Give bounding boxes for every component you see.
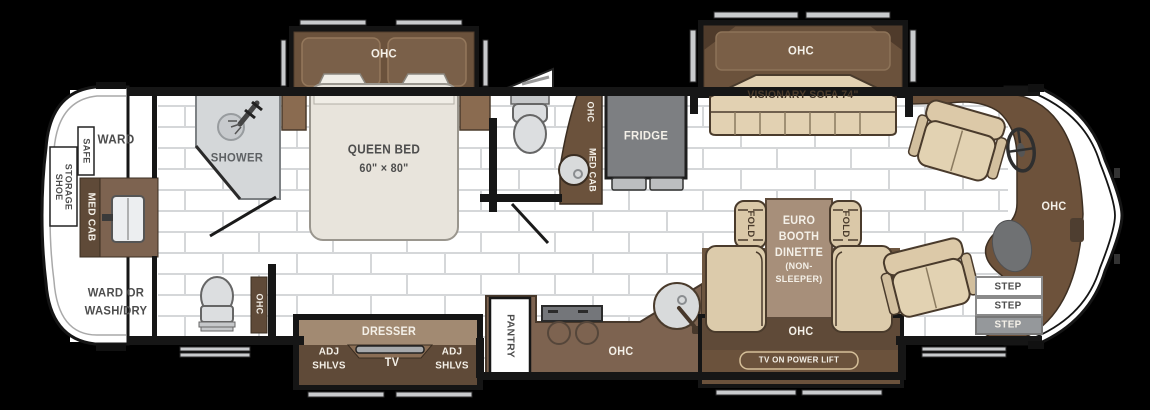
queen-bed-label: QUEEN BED — [348, 143, 420, 156]
midbath-ohc-label: OHC — [585, 102, 594, 123]
fold-right-label: FOLD — [840, 210, 850, 237]
fold-left-label: FOLD — [745, 210, 755, 237]
bottom-wall-galley — [478, 372, 906, 380]
slide-rail — [690, 30, 696, 82]
adj-shlvs-left-label-2: SHLVS — [312, 360, 346, 371]
midbath-wall — [480, 194, 562, 202]
bottom-wall-front — [896, 336, 1042, 345]
step-label-2: STEP — [995, 300, 1022, 311]
slide-rail — [308, 392, 384, 397]
ward-wash-label-1: WARD OR — [88, 287, 145, 300]
sofa-ohc-label: OHC — [788, 45, 814, 58]
sofa-end-wall — [905, 87, 913, 117]
booth-seat — [832, 246, 892, 332]
dash-panel — [1070, 218, 1084, 242]
wiper-mount-icon — [1114, 168, 1120, 178]
nightstand — [282, 94, 306, 130]
toilet-icon — [199, 277, 235, 331]
slide-rail — [281, 40, 286, 86]
sofa-label: VISIONARY SOFA 74" — [747, 90, 858, 102]
chassis-tab — [1028, 84, 1044, 92]
sink-icon — [559, 155, 589, 185]
bedroom-rear-wall — [268, 264, 276, 336]
pantry-label: PANTRY — [504, 314, 515, 358]
chassis-tab — [96, 344, 126, 351]
dinette-label-4: (NON- — [785, 262, 812, 272]
tv-icon — [356, 346, 424, 353]
step-label-3: STEP — [995, 319, 1022, 330]
rv-floor-plan: WARD SAFE SHOESTORAGE MED CAB WARD OR WA… — [0, 0, 1150, 410]
dinette-label-2: BOOTH — [779, 231, 819, 243]
fridge-tray — [650, 178, 683, 190]
fridge-end-wall — [690, 92, 698, 114]
dresser-label: DRESSER — [362, 326, 416, 338]
shoe-storage-label: SHOESTORAGE — [54, 164, 73, 210]
step-label-1: STEP — [995, 281, 1022, 292]
floorplan-svg — [0, 0, 1150, 410]
slide-rail — [396, 20, 462, 25]
slide-rail — [396, 392, 472, 397]
midbath-med-cab-label: MED CAB — [587, 148, 596, 192]
slide-rail — [910, 30, 916, 82]
safe-label: SAFE — [81, 138, 90, 163]
entry-rail — [922, 347, 1006, 351]
dinette-label-1: EURO — [783, 215, 815, 227]
chassis-tab — [96, 82, 126, 89]
slide-rail — [483, 40, 488, 86]
slide-rail — [300, 20, 366, 25]
bed-ohc-label: OHC — [371, 48, 397, 61]
wall-connector — [476, 338, 484, 378]
dinette-ohc-label: OHC — [789, 326, 814, 338]
chassis-tab — [1028, 341, 1044, 349]
slide-rail — [806, 12, 890, 18]
cooktop-icon — [542, 306, 602, 321]
fridge-label: FRIDGE — [624, 130, 668, 143]
shower-label: SHOWER — [211, 152, 263, 165]
top-wall — [128, 87, 1040, 96]
rear-ohc-label: OHC — [254, 294, 263, 315]
sofa — [710, 75, 896, 135]
queen-bed-size-label: 60" × 80" — [359, 163, 408, 175]
washdry-wall — [152, 256, 157, 336]
cooktop-knob — [548, 310, 558, 313]
living-room — [690, 12, 916, 135]
faucet-icon — [102, 214, 113, 221]
tv-label: TV — [385, 357, 399, 369]
wiper-mount-icon — [1114, 254, 1120, 264]
dash-ohc-label: OHC — [1042, 201, 1067, 213]
fridge-tray — [612, 178, 646, 190]
ward-label: WARD — [97, 133, 134, 146]
booth-seat — [706, 246, 766, 332]
dinette-label-5: SLEEPER) — [776, 275, 823, 285]
bottom-wall-rear — [128, 336, 304, 345]
ward-wash-label-2: WASH/DRY — [85, 305, 148, 318]
entry-rail — [922, 353, 1006, 357]
slide-rail — [802, 390, 882, 395]
toilet-icon — [511, 92, 549, 153]
nightstand — [460, 94, 490, 130]
wall-connector — [898, 338, 906, 378]
adj-shlvs-right-label-2: SHLVS — [435, 360, 469, 371]
slide-rail — [180, 347, 250, 351]
dinette-label-3: DINETTE — [775, 247, 823, 259]
adj-shlvs-right-label-1: ADJ — [442, 346, 463, 357]
cooktop-knob — [578, 310, 588, 313]
adj-shlvs-left-label-1: ADJ — [319, 346, 340, 357]
ward-wall — [152, 92, 157, 178]
kitchen-ohc-label: OHC — [609, 346, 634, 358]
tv-power-lift-label: TV ON POWER LIFT — [759, 356, 839, 365]
slide-rail — [716, 390, 796, 395]
slide-rail — [714, 12, 798, 18]
slide-rail — [180, 353, 250, 357]
rear-med-cab-label: MED CAB — [85, 193, 96, 242]
